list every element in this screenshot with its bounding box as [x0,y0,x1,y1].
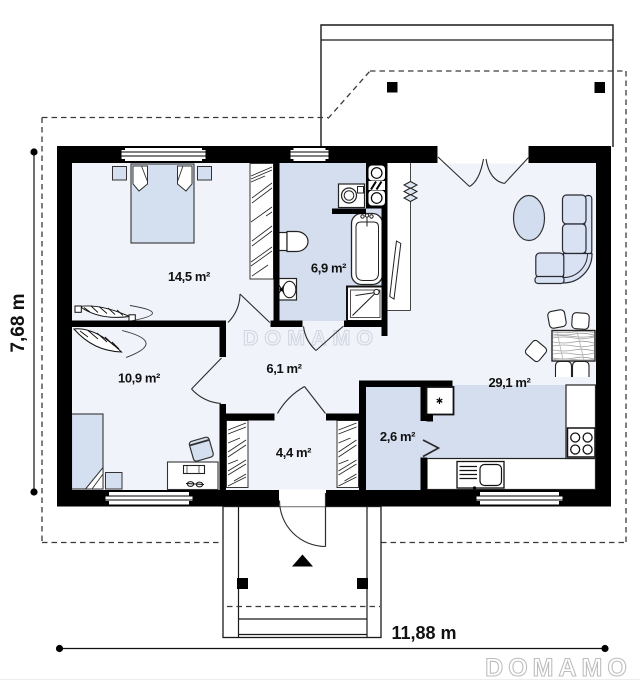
svg-text:2,6 m²: 2,6 m² [380,429,416,444]
svg-text:4,4 m²: 4,4 m² [276,445,312,460]
svg-text:DOMAMO: DOMAMO [243,326,379,350]
svg-text:6,1 m²: 6,1 m² [266,361,302,376]
svg-text:10,9 m²: 10,9 m² [118,371,161,386]
svg-text:7,68 m: 7,68 m [8,293,29,352]
svg-text:11,88 m: 11,88 m [391,623,456,643]
svg-text:6,9 m²: 6,9 m² [311,261,347,276]
svg-text:14,5 m²: 14,5 m² [168,269,211,284]
svg-text:29,1 m²: 29,1 m² [488,375,531,390]
svg-text:DOMAMO: DOMAMO [485,654,632,682]
